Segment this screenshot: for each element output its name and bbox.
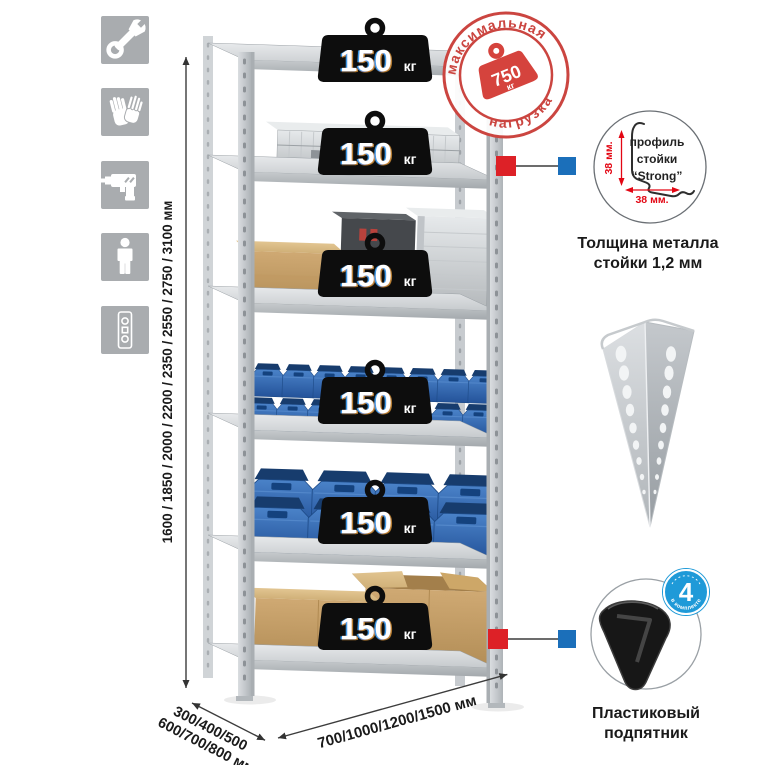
height-dimension: 1600 / 1850 / 2000 / 2200 / 2350 / 2550 … — [160, 57, 186, 688]
product-infographic-page: 150 кг — [0, 0, 765, 765]
feature-icons-column — [101, 13, 152, 354]
shelf-load-label — [318, 21, 432, 83]
rack-infographic: 150 кг — [0, 0, 765, 765]
foot-detail: 4 в комплекте Пластиковый подпятник — [591, 569, 710, 743]
profile-dim-horizontal-text: 38 мм. — [635, 194, 668, 206]
small-bin — [437, 369, 470, 403]
blue-marker-square — [558, 157, 576, 175]
profile-label-line2: стойки — [637, 152, 677, 166]
width-dimension: 700/1000/1200/1500 мм — [278, 674, 514, 762]
drill-icon — [101, 161, 149, 209]
red-marker-square — [488, 629, 508, 649]
red-marker-square — [496, 156, 516, 176]
profile-dim-vertical-text: 38 мм. — [603, 141, 615, 174]
count-badge: 4 в комплекте — [663, 569, 710, 616]
blue-marker-square — [558, 630, 576, 648]
profile-label-line1: профиль — [630, 135, 685, 149]
foot-callout-connector — [488, 629, 576, 649]
person-icon — [101, 233, 149, 281]
wrench-icon — [101, 13, 152, 64]
foot-caption-line2: подпятник — [604, 725, 689, 742]
gloves-icon — [101, 88, 149, 136]
small-bin — [251, 363, 284, 397]
width-options-text: 700/1000/1200/1500 мм — [316, 692, 479, 752]
profile-label-line3: “Strong” — [632, 169, 683, 183]
thickness-caption-line1: Толщина металла — [577, 235, 718, 252]
shelf-load-label — [318, 114, 432, 176]
thickness-caption-line2: стойки 1,2 мм — [594, 255, 703, 272]
profile-callout-connector — [496, 156, 576, 176]
badge-count-value: 4 — [679, 577, 694, 607]
small-bin — [282, 364, 315, 398]
angle-post-image — [602, 320, 694, 527]
height-options-text: 1600 / 1850 / 2000 / 2200 / 2350 / 2550 … — [160, 201, 175, 544]
foot-caption-line1: Пластиковый — [592, 705, 700, 722]
rack-post-icon — [101, 306, 149, 354]
profile-detail: профиль стойки “Strong” 38 мм. 38 мм. То… — [577, 111, 718, 272]
